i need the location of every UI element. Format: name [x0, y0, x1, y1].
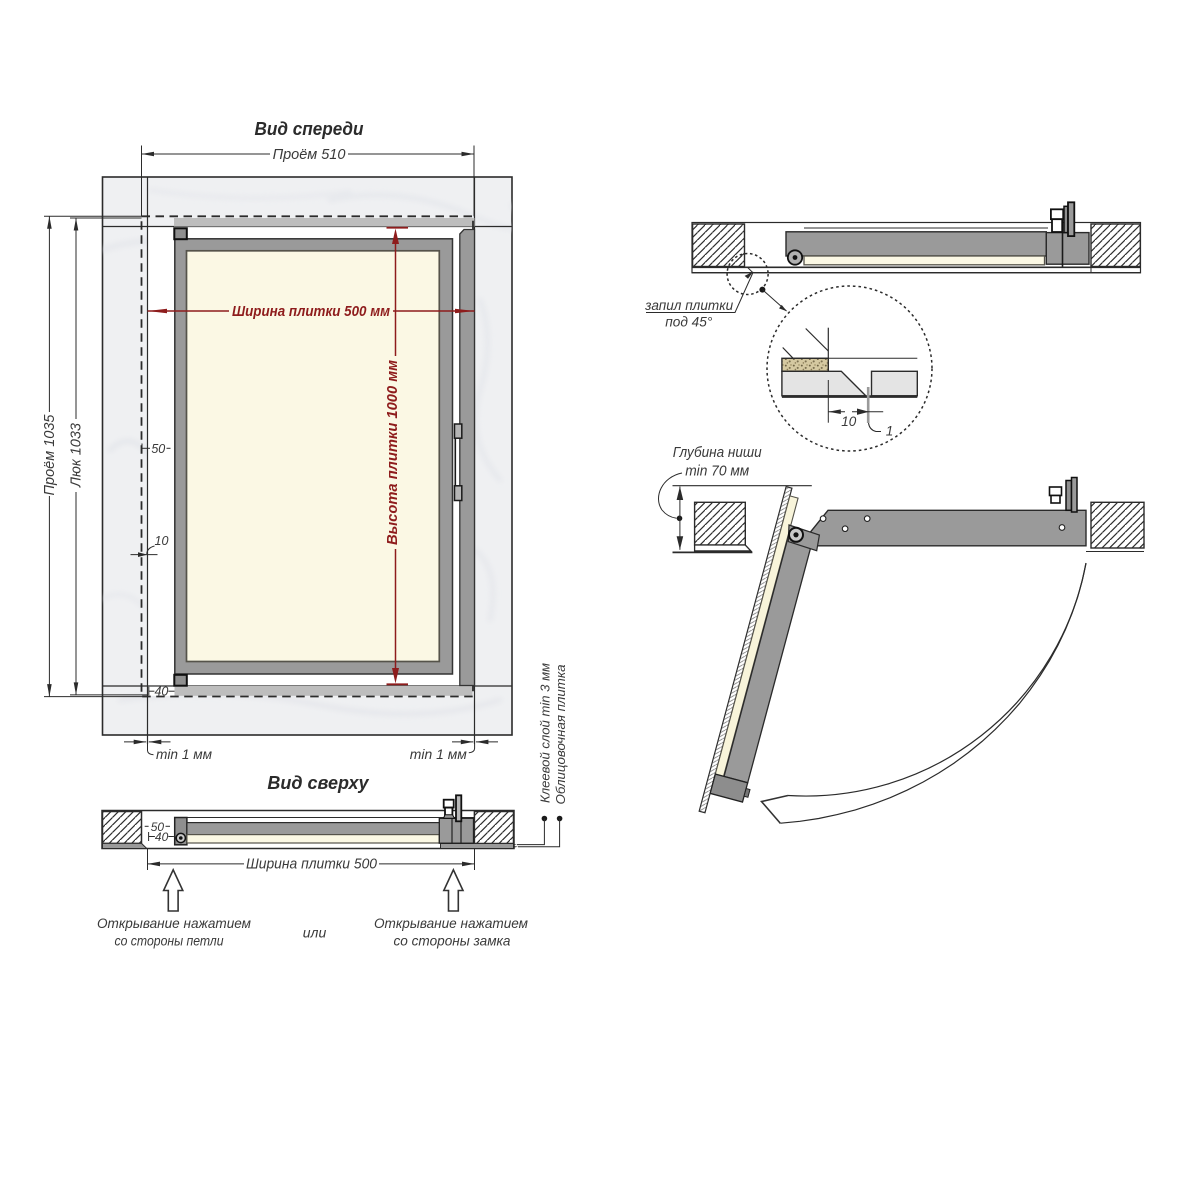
- svg-text:1: 1: [886, 424, 894, 439]
- svg-text:Открывание нажатием: Открывание нажатием: [97, 915, 251, 931]
- svg-text:min 1 мм: min 1 мм: [410, 747, 467, 762]
- svg-text:со стороны петли: со стороны петли: [115, 933, 224, 949]
- svg-text:Вид сверху: Вид сверху: [267, 773, 369, 793]
- svg-text:Клеевой слой min 3 мм: Клеевой слой min 3 мм: [538, 663, 553, 803]
- svg-text:Высота плитки 1000 мм: Высота плитки 1000 мм: [385, 360, 401, 545]
- svg-text:Люк 1033: Люк 1033: [69, 423, 85, 488]
- svg-text:10: 10: [155, 534, 169, 548]
- svg-text:Проём 1035: Проём 1035: [42, 414, 58, 496]
- svg-text:40: 40: [154, 685, 168, 699]
- svg-text:10: 10: [841, 414, 857, 429]
- svg-text:Ширина плитки 500: Ширина плитки 500: [246, 857, 377, 873]
- svg-text:min 70 мм: min 70 мм: [685, 464, 749, 480]
- svg-text:Глубина ниши: Глубина ниши: [673, 445, 762, 461]
- svg-text:min 1 мм: min 1 мм: [156, 747, 212, 762]
- svg-text:50: 50: [151, 442, 165, 456]
- svg-text:40: 40: [155, 830, 169, 844]
- svg-text:или: или: [303, 925, 327, 941]
- svg-text:Открывание нажатием: Открывание нажатием: [374, 915, 528, 931]
- svg-text:Вид спереди: Вид спереди: [255, 119, 364, 139]
- svg-text:со стороны замка: со стороны замка: [394, 933, 511, 949]
- svg-text:Проём 510: Проём 510: [273, 147, 346, 163]
- svg-text:под 45°: под 45°: [665, 315, 713, 330]
- svg-text:запил плитки: запил плитки: [644, 298, 733, 313]
- svg-text:Облицовочная плитка: Облицовочная плитка: [553, 665, 568, 805]
- svg-text:Ширина плитки 500 мм: Ширина плитки 500 мм: [232, 304, 390, 320]
